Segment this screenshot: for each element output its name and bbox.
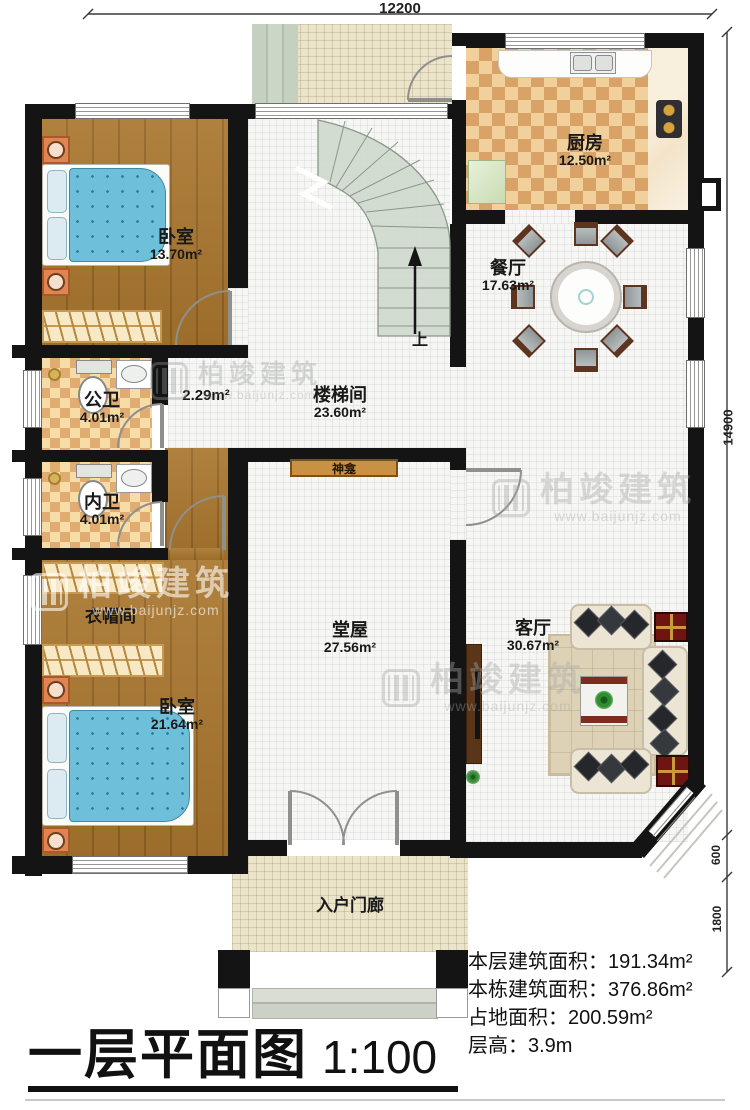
drawing-scale: 1:100 [322, 1030, 437, 1084]
dimension-right: 14900 [721, 404, 736, 452]
drawing-title-text: 一层平面图 [28, 1010, 308, 1089]
shrine-label: 神龛 [332, 460, 356, 477]
stat-row: 层高：3.9m [468, 1032, 693, 1060]
dimension-top: 12200 [330, 0, 470, 17]
dimension-right-1800: 1800 [710, 896, 724, 942]
stat-label: 层高： [468, 1035, 528, 1057]
title-underline [28, 1086, 458, 1092]
stat-value: 3.9m [528, 1035, 572, 1057]
door-arc-entrance-left [290, 791, 344, 845]
drawing-title: 一层平面图 1:100 [28, 1010, 437, 1089]
stat-label: 本层建筑面积： [468, 951, 608, 973]
door-arc-private-bath [118, 502, 162, 546]
stat-row: 占地面积：200.59m² [468, 1004, 693, 1032]
stat-value: 200.59m² [568, 1007, 653, 1029]
title-divider-line [25, 1099, 725, 1101]
stat-row: 本栋建筑面积：376.86m² [468, 976, 693, 1004]
dimension-right-600: 600 [709, 835, 723, 875]
floor-plan: 神龛 [0, 0, 750, 1110]
stat-label: 本栋建筑面积： [468, 979, 608, 1001]
door-arc-entrance-right [343, 791, 397, 845]
stat-value: 376.86m² [608, 979, 693, 1001]
stairs [296, 120, 450, 336]
stat-value: 191.34m² [608, 951, 693, 973]
door-arc-bedroom-top [176, 291, 230, 345]
door-arc-terrace [408, 56, 452, 100]
building-stats: 本层建筑面积：191.34m² 本栋建筑面积：376.86m² 占地面积：200… [468, 948, 693, 1060]
stat-row: 本层建筑面积：191.34m² [468, 948, 693, 976]
door-arc-public-bath [118, 404, 162, 448]
stat-label: 占地面积： [468, 1007, 568, 1029]
dimension-lines [83, 9, 732, 977]
door-arc-cloakroom [170, 496, 224, 550]
shrine-shelf: 神龛 [290, 459, 398, 477]
door-arc-living [466, 470, 521, 525]
plan-annotations-svg [0, 0, 750, 1110]
